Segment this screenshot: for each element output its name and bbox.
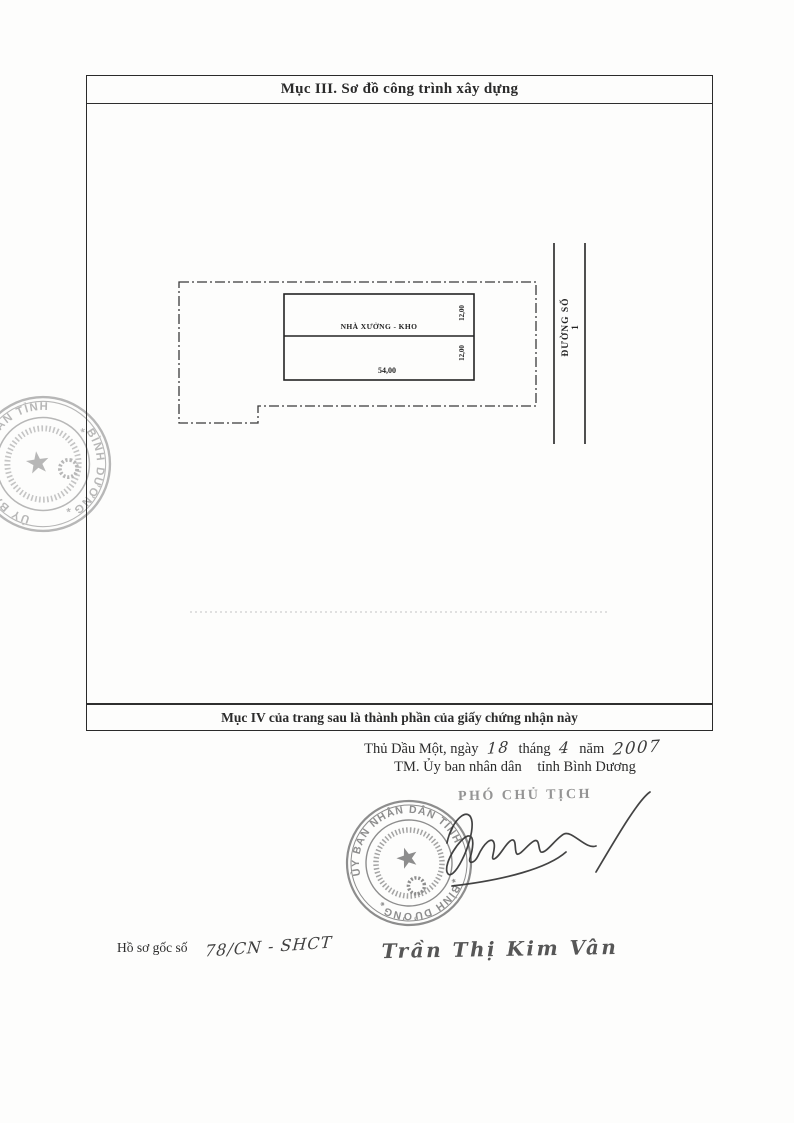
footer-note: Mục IV của trang sau là thành phần của g… [87,703,712,730]
star-icon [394,845,420,870]
handwritten-day: 18 [486,738,510,758]
month-label: tháng [518,741,550,757]
year-label: năm [579,741,604,757]
dossier-label: Hồ sơ gốc số [117,940,188,955]
certificate-frame: Mục III. Sơ đồ công trình xây dựng Mục I… [86,75,713,731]
building-label: NHÀ XƯỞNG - KHO [284,322,474,331]
signature-stroke [452,852,566,886]
gear-icon [59,458,79,478]
handwritten-month: 4 [559,739,572,758]
on-behalf-text: TM. Ủy ban nhân dân [394,759,522,775]
section-title: Mục III. Sơ đồ công trình xây dựng [87,76,712,104]
place-text: Thủ Dầu Một [364,741,443,757]
star-icon [24,450,49,476]
handwritten-year: 2007 [612,736,661,758]
signer-name: Trần Thị Kim Vân [380,935,620,963]
signature-stroke [447,814,596,874]
handwritten-dossier-number: 78/CN - SHCT [204,932,332,960]
authority-line: TM. Ủy ban nhân dân tỉnh Bình Dương [330,759,700,776]
dossier-number-line: Hồ sơ gốc số 78/CN - SHCT [117,937,337,956]
province-text: tỉnh Bình Dương [537,759,636,775]
day-label: , ngày [443,741,478,757]
width-dimension-bottom: 12,00 [458,336,472,370]
road-label: ĐƯỜNG SỐ 1 [561,295,575,359]
signature-stroke [596,792,650,872]
length-dimension: 54,00 [292,366,482,375]
width-dimension-top: 12,00 [458,296,472,330]
signature-ink [420,780,670,910]
scanned-certificate-page: ỦY BAN NHÂN DÂN TỈNH BÌNH DƯƠNG * * Mục … [0,0,794,1123]
place-date-line: Thủ Dầu Một, ngày 18 tháng 4 năm 2007 [330,738,700,758]
wreath-ring [2,423,85,506]
